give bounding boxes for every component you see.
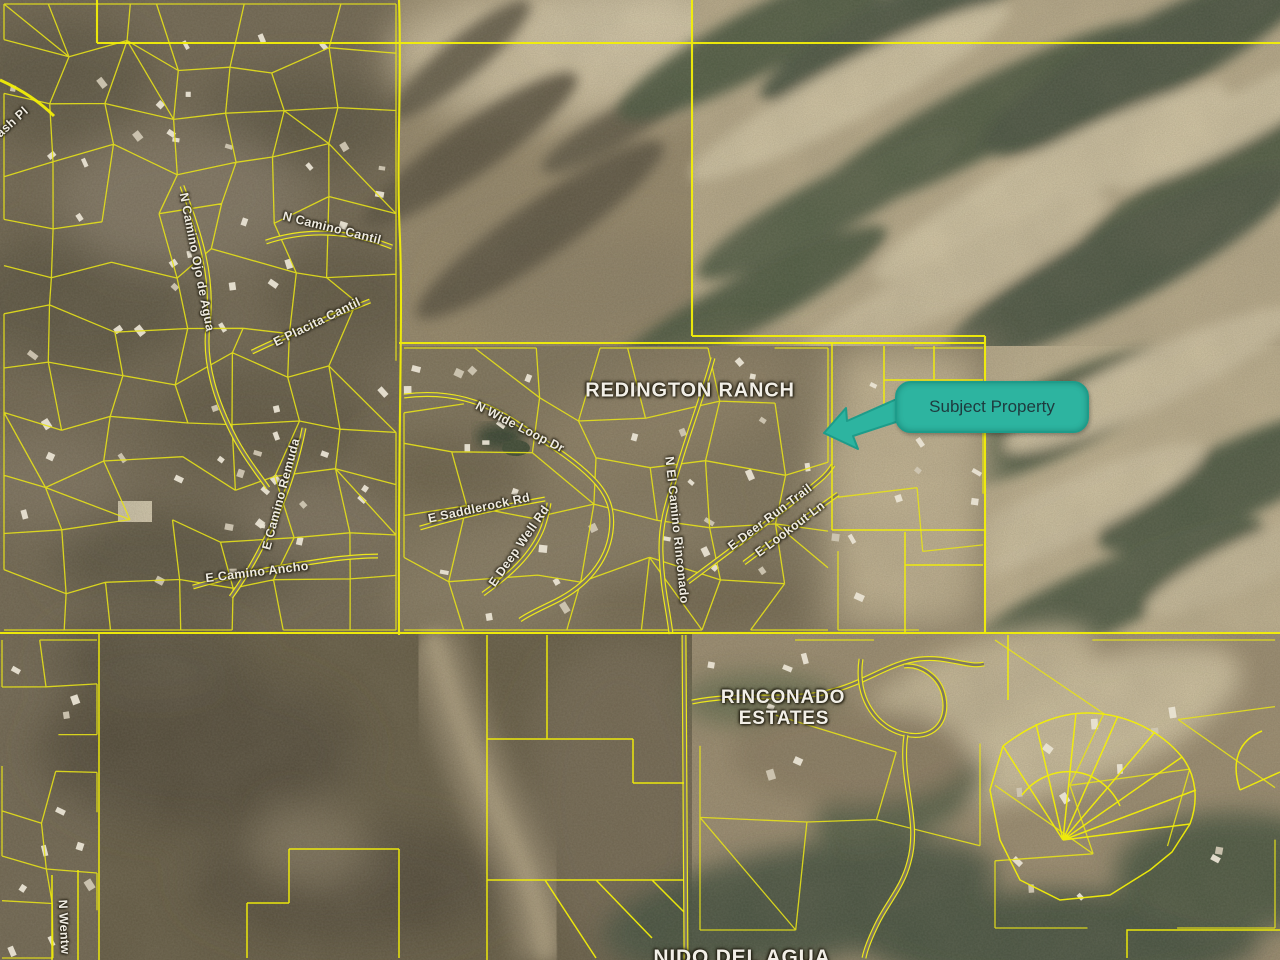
subject-property-label: Subject Property	[929, 397, 1055, 417]
map-label-e-deep-well-rd: E Deep Well Rd	[486, 503, 552, 589]
map-label-rinconado-estates: ESTATES	[739, 708, 829, 730]
map-label-n-camino-cantil: N Camino Cantil	[281, 209, 382, 247]
map-label-e-deer-run-trail: E Deer Run Trail	[725, 481, 814, 553]
map-label-e-camino-ancho: E Camino Ancho	[205, 559, 310, 586]
map-label-n-wide-loop-dr: N Wide Loop Dr	[473, 399, 567, 456]
map-label-nido-del-agua: NIDO DEL AGUA	[653, 946, 830, 960]
aerial-parcel-map: REDINGTON RANCHRINCONADOESTATESNIDO DEL …	[0, 0, 1280, 960]
map-label-n-camino-ojo-de-agua: N Camino Ojo de Agua	[177, 191, 218, 332]
map-label-n-el-camino-rinconado: N El Camino Rinconado	[662, 456, 691, 605]
map-label-e-lookout-ln: E Lookout Ln	[752, 498, 827, 559]
map-label-e-camino-remuda: E Camino Remuda	[259, 437, 302, 552]
subject-property-callout: Subject Property	[895, 381, 1089, 433]
map-labels-layer: REDINGTON RANCHRINCONADOESTATESNIDO DEL …	[0, 0, 1280, 960]
map-label-n-wentw: N Wentw	[56, 899, 73, 954]
map-label-redington-ranch: REDINGTON RANCH	[585, 380, 794, 403]
map-label-e-saddlerock-rd: E Saddlerock Rd	[427, 490, 531, 525]
map-label-ash-pl: ash Pl	[0, 104, 31, 140]
map-label-e-placita-cantil: E Placita Cantil	[271, 295, 363, 349]
map-label-rinconado: RINCONADO	[721, 687, 845, 709]
